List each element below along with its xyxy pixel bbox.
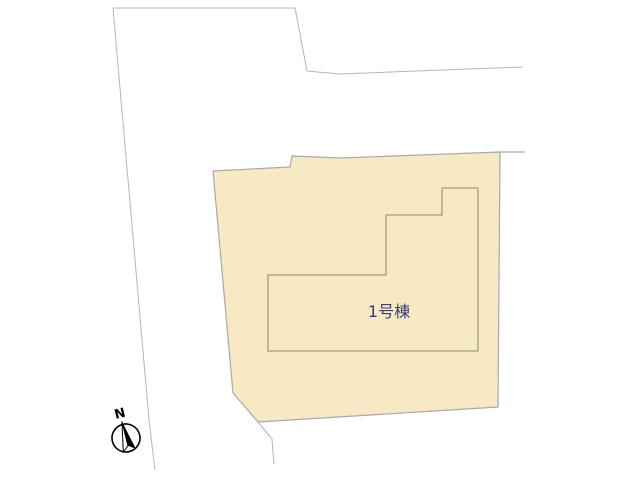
building-label: 1号棟 <box>368 302 410 321</box>
road-boundary-bottom <box>258 422 274 464</box>
land-parcel <box>213 152 500 422</box>
site-plan: 1号棟 N <box>0 0 640 480</box>
road-boundary-top <box>113 8 523 74</box>
north-label: N <box>113 406 127 423</box>
road-boundary-left <box>113 8 155 470</box>
north-compass: N <box>105 404 143 455</box>
site-plan-drawing: 1号棟 N <box>0 0 640 480</box>
